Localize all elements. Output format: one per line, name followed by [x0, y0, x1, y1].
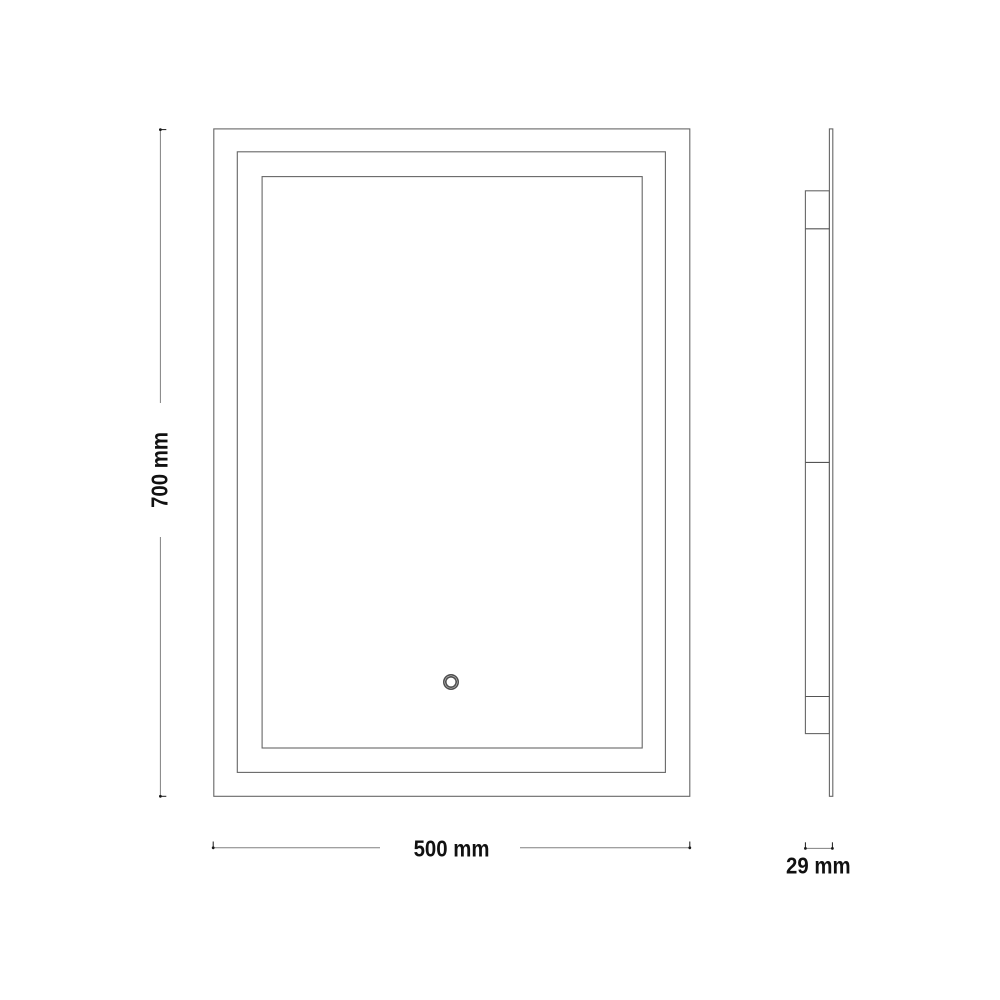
svg-text:700 mm: 700 mm — [146, 432, 173, 508]
svg-text:500 mm: 500 mm — [414, 835, 490, 862]
svg-text:29 mm: 29 mm — [786, 852, 851, 879]
